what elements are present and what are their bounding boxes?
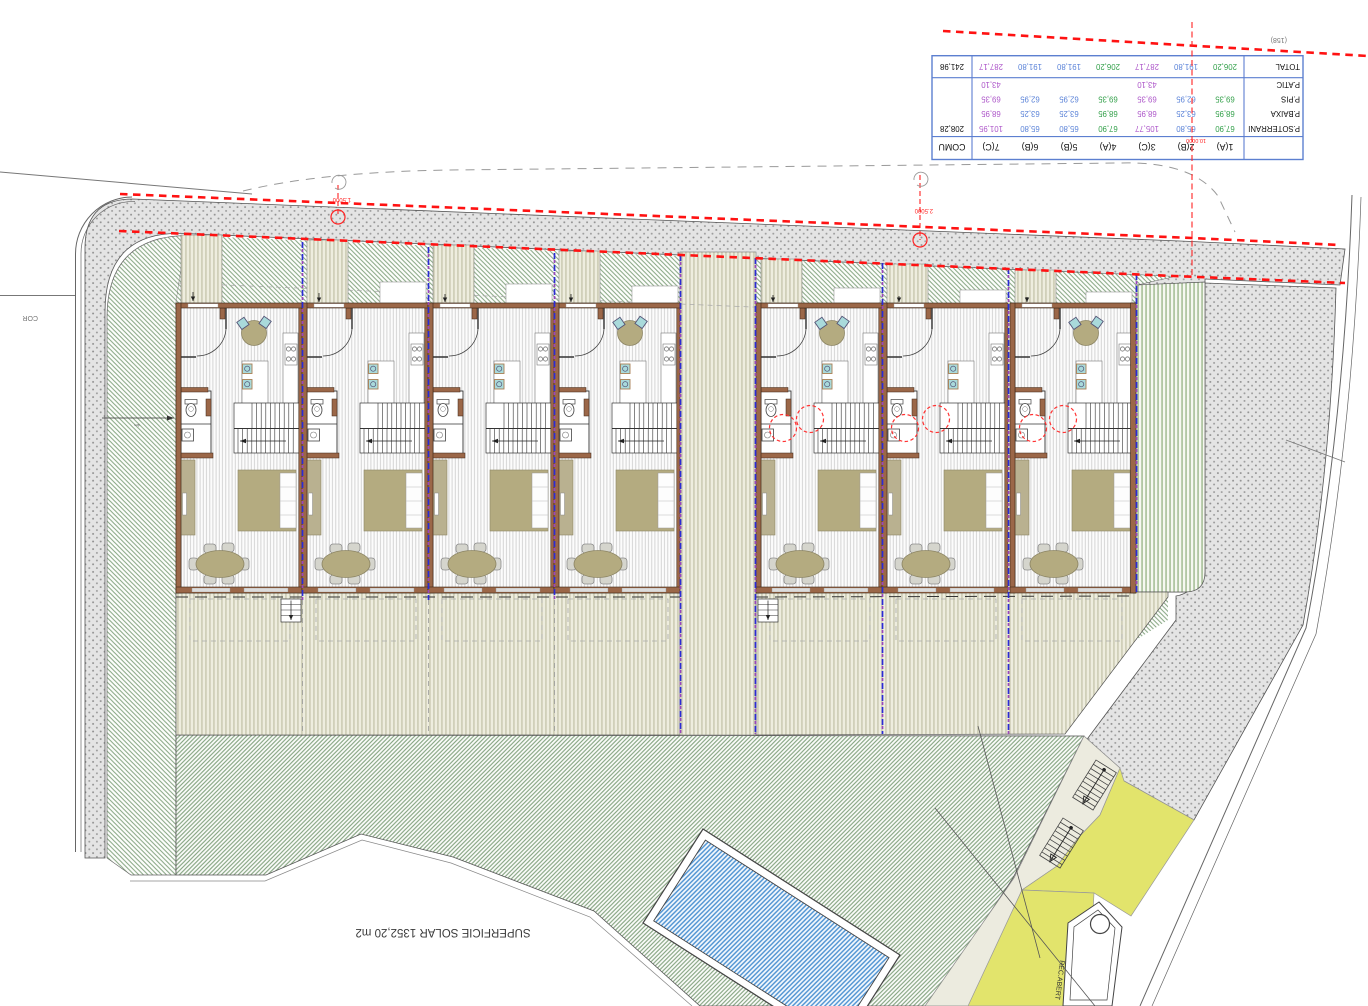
svg-text:206,20: 206,20 xyxy=(1212,62,1237,71)
svg-text:69,35: 69,35 xyxy=(1098,95,1118,104)
svg-text:65,80: 65,80 xyxy=(1059,124,1079,133)
svg-text:5(B): 5(B) xyxy=(1061,142,1078,152)
svg-text:67,90: 67,90 xyxy=(1098,124,1118,133)
svg-text:COR: COR xyxy=(22,314,38,321)
svg-text:69,35: 69,35 xyxy=(1215,95,1235,104)
svg-text:62,95: 62,95 xyxy=(1059,95,1079,104)
svg-text:P.SOTERRANI: P.SOTERRANI xyxy=(1248,124,1300,133)
svg-text:69,35: 69,35 xyxy=(981,95,1001,104)
svg-text:68,95: 68,95 xyxy=(1137,109,1157,118)
svg-text:67,90: 67,90 xyxy=(1215,124,1235,133)
svg-text:6(B): 6(B) xyxy=(1022,142,1039,152)
svg-text:241,98: 241,98 xyxy=(940,62,964,71)
svg-text:105,77: 105,77 xyxy=(1135,124,1159,133)
svg-text:191,80: 191,80 xyxy=(1017,62,1042,71)
svg-text:208,28: 208,28 xyxy=(940,124,964,133)
svg-text:2.5000: 2.5000 xyxy=(914,207,933,213)
svg-text:P.BAIXA: P.BAIXA xyxy=(1270,109,1300,118)
svg-text:101,95: 101,95 xyxy=(978,124,1003,133)
svg-text:68,95: 68,95 xyxy=(1098,109,1118,118)
svg-text:4(A): 4(A) xyxy=(1100,142,1117,152)
svg-text:10.0000: 10.0000 xyxy=(1186,137,1206,143)
svg-text:43,10: 43,10 xyxy=(981,80,1001,89)
svg-text:P.ATIC: P.ATIC xyxy=(1276,80,1300,89)
svg-text:62,95: 62,95 xyxy=(1176,95,1196,104)
svg-text:68,95: 68,95 xyxy=(981,109,1001,118)
svg-text:63,25: 63,25 xyxy=(1176,109,1196,118)
svg-text:7(C): 7(C) xyxy=(982,142,999,152)
svg-text:65,80: 65,80 xyxy=(1176,124,1196,133)
svg-text:TOTAL: TOTAL xyxy=(1275,62,1300,71)
svg-text:69,35: 69,35 xyxy=(1137,95,1157,104)
svg-text:206,20: 206,20 xyxy=(1095,62,1120,71)
svg-text:1(A): 1(A) xyxy=(1217,142,1234,152)
svg-text:287,17: 287,17 xyxy=(979,62,1003,71)
svg-text:191,80: 191,80 xyxy=(1056,62,1081,71)
svg-text:191,80: 191,80 xyxy=(1173,62,1198,71)
svg-text:62,95: 62,95 xyxy=(1020,95,1040,104)
svg-text:COMU: COMU xyxy=(939,142,966,152)
svg-text:(158): (158) xyxy=(1271,36,1287,43)
svg-text:SUPERFICIE SOLAR 1352,20 m2: SUPERFICIE SOLAR 1352,20 m2 xyxy=(355,926,530,938)
svg-text:P.PIS: P.PIS xyxy=(1281,95,1300,104)
svg-text:287,17: 287,17 xyxy=(1135,62,1159,71)
svg-text:1.5000: 1.5000 xyxy=(332,196,351,202)
svg-text:3(C): 3(C) xyxy=(1138,142,1155,152)
svg-text:4m: 4m xyxy=(134,423,140,428)
svg-text:43,10: 43,10 xyxy=(1137,80,1157,89)
svg-text:68,95: 68,95 xyxy=(1215,109,1235,118)
svg-text:63,25: 63,25 xyxy=(1059,109,1079,118)
svg-text:65,80: 65,80 xyxy=(1020,124,1040,133)
svg-text:63,25: 63,25 xyxy=(1020,109,1040,118)
